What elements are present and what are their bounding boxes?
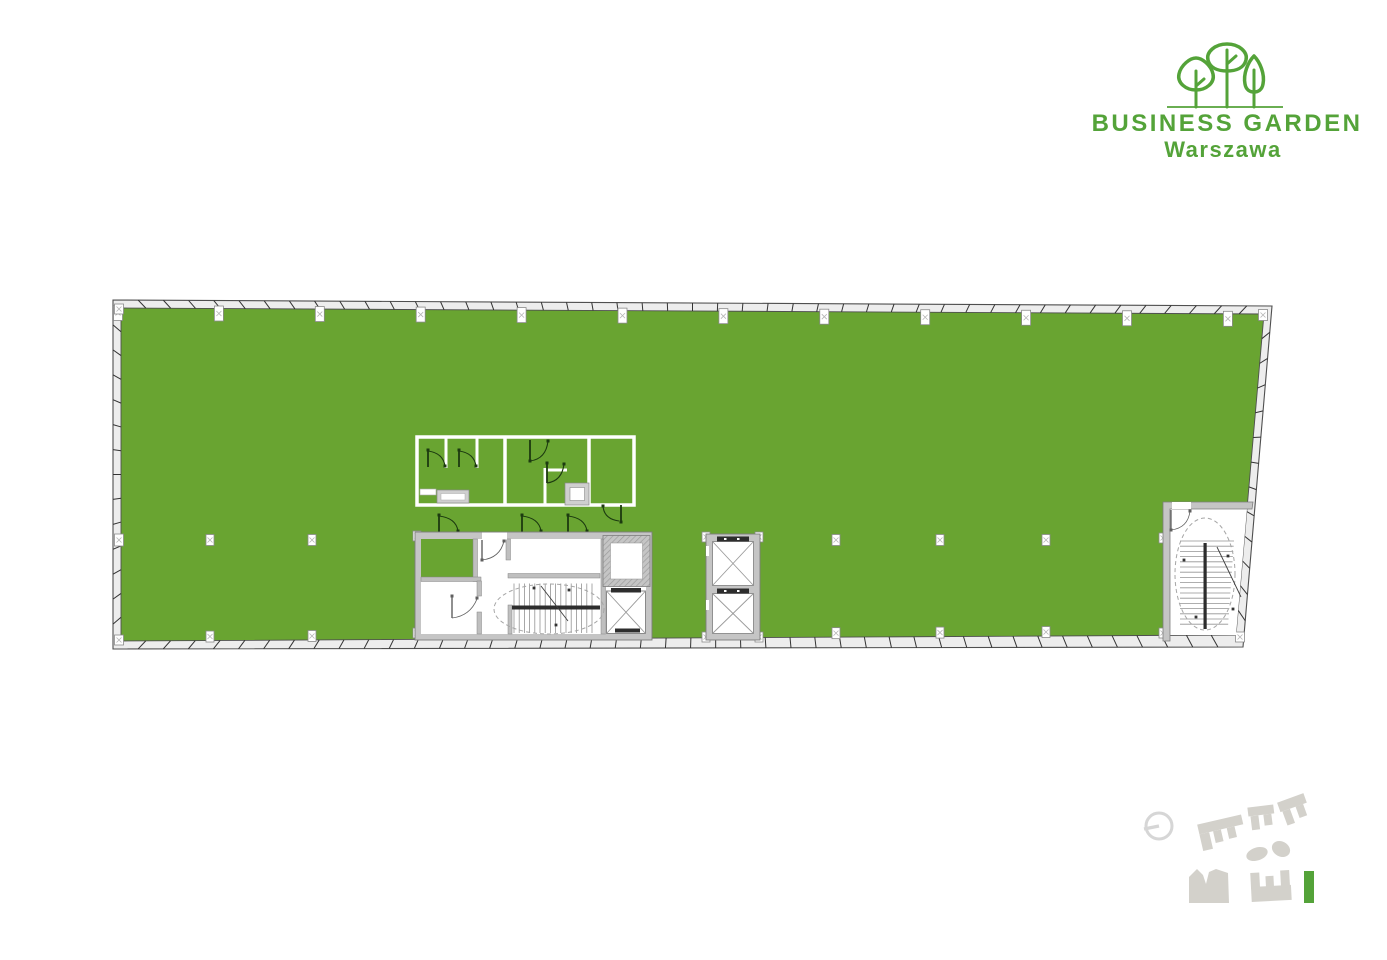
site-buildings — [1189, 793, 1312, 903]
logo-subtitle: Warszawa — [1164, 137, 1282, 162]
north-indicator-icon — [1144, 813, 1172, 839]
current-building-marker — [1304, 871, 1314, 903]
floor-plan-page: BUSINESS GARDEN Warszawa — [0, 0, 1387, 960]
logo-title: BUSINESS GARDEN — [1092, 110, 1363, 137]
open-office-area — [121, 308, 1264, 641]
brand-logo: BUSINESS GARDEN Warszawa — [1092, 44, 1363, 162]
elevator-shafts — [706, 534, 760, 640]
floor-plan-sheet: BUSINESS GARDEN Warszawa — [0, 0, 1387, 960]
site-key-plan — [1144, 793, 1314, 903]
core-elevator — [607, 588, 646, 634]
floor-plan — [113, 300, 1314, 903]
three-trees-icon — [1167, 44, 1283, 107]
